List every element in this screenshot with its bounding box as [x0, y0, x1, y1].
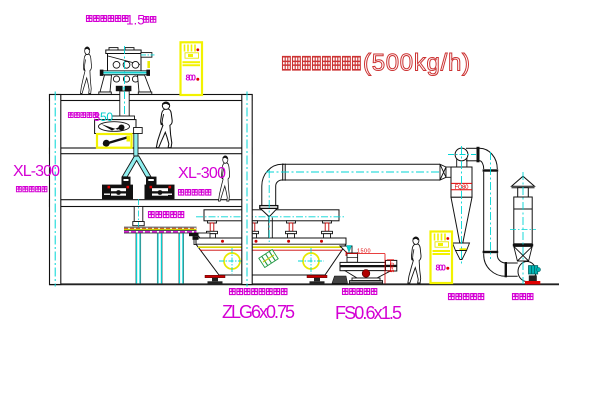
svg-text:1500: 1500 [357, 249, 371, 255]
svg-text:XL-300: XL-300 [13, 163, 60, 180]
svg-text:FS0.6x1.5: FS0.6x1.5 [335, 303, 402, 323]
svg-text:800: 800 [186, 73, 197, 83]
svg-text:XL-300: XL-300 [178, 165, 226, 182]
svg-text:ZLG6x0.75: ZLG6x0.75 [222, 302, 295, 322]
svg-text:800: 800 [436, 263, 447, 273]
svg-text:540: 540 [390, 263, 396, 273]
svg-text:50: 50 [100, 110, 113, 124]
svg-text:(500kg/h): (500kg/h) [363, 50, 470, 77]
svg-text:1.5: 1.5 [126, 13, 145, 28]
